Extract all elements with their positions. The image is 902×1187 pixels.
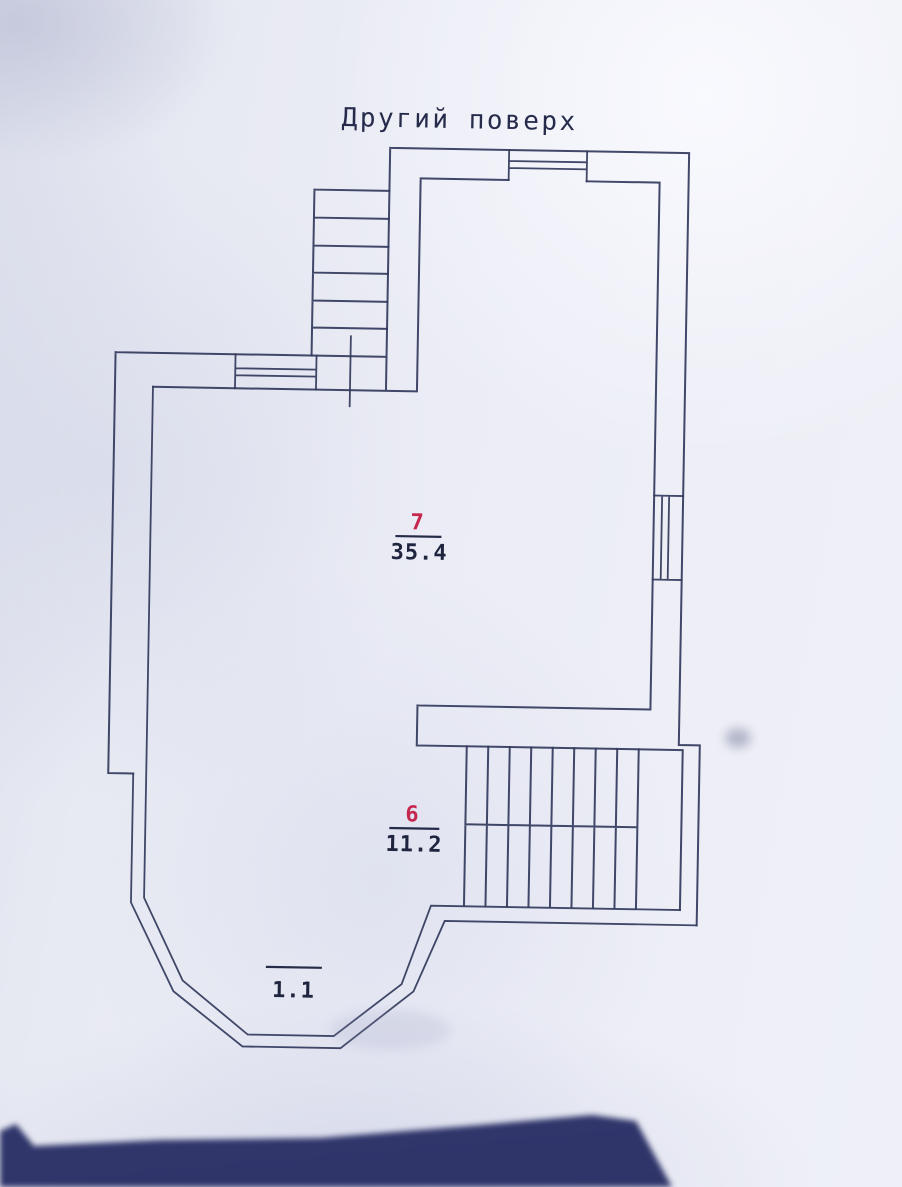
dark-object-blur-wrap — [0, 0, 902, 1187]
dark-cover-object — [0, 0, 902, 1187]
floor-plan-photo: Другий поверх 7 35.4 6 — [0, 0, 902, 1187]
